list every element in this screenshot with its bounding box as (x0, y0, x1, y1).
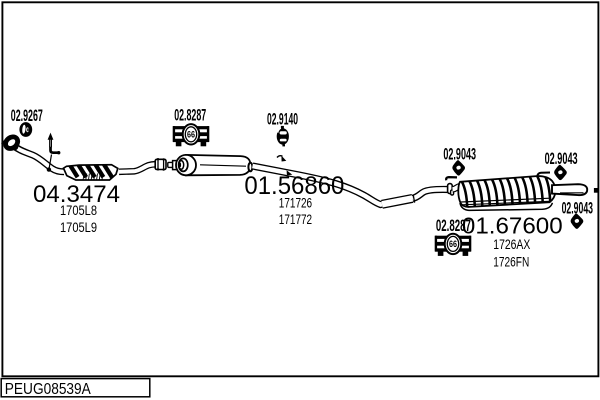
svg-text:PEUG08539A: PEUG08539A (5, 381, 91, 398)
svg-text:1705L9: 1705L9 (60, 220, 97, 235)
svg-text:66: 66 (187, 130, 195, 140)
svg-text:171726: 171726 (279, 196, 313, 211)
svg-text:1726AX: 1726AX (493, 237, 530, 252)
svg-text:02.9043: 02.9043 (562, 198, 593, 217)
svg-text:01.67600: 01.67600 (462, 213, 563, 239)
svg-text:02.9267: 02.9267 (11, 106, 43, 125)
svg-text:02.9043: 02.9043 (443, 144, 476, 163)
svg-text:171772: 171772 (279, 212, 312, 227)
svg-text:02.9140: 02.9140 (267, 110, 298, 129)
svg-text:1705L8: 1705L8 (60, 203, 97, 218)
svg-text:1726FN: 1726FN (493, 254, 529, 269)
svg-text:02.8287: 02.8287 (174, 106, 206, 125)
svg-text:02.9043: 02.9043 (545, 149, 578, 168)
